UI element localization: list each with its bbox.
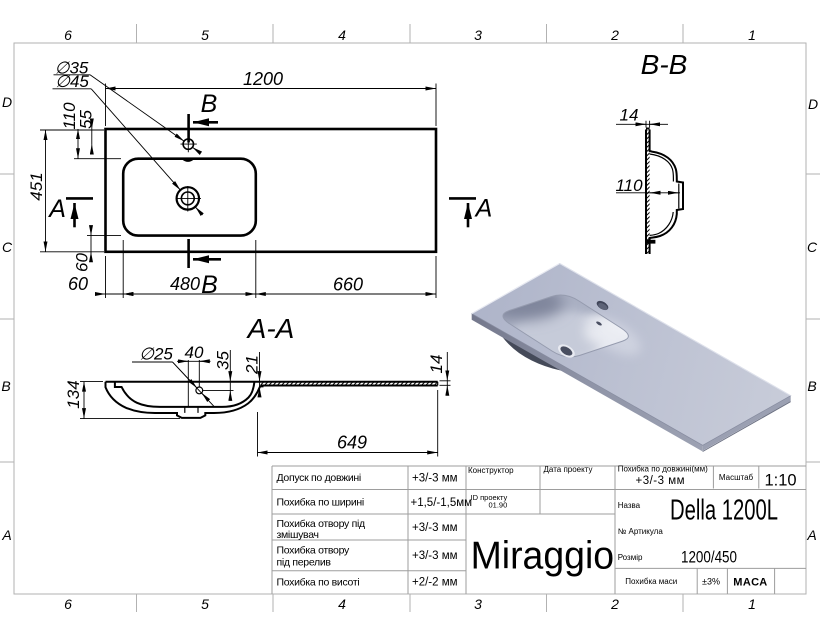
svg-text:під перелив: під перелив — [277, 557, 332, 569]
svg-text:C: C — [2, 239, 13, 255]
svg-text:3: 3 — [474, 596, 482, 612]
svg-text:Допуск по довжині: Допуск по довжині — [277, 472, 361, 484]
svg-text:60: 60 — [68, 274, 88, 294]
svg-text:A: A — [474, 195, 493, 223]
svg-text:Похибка по висоті: Похибка по висоті — [277, 577, 360, 589]
svg-text:55: 55 — [77, 110, 96, 129]
svg-text:±3%: ±3% — [702, 577, 720, 587]
svg-text:Дата проекту: Дата проекту — [544, 465, 593, 474]
svg-text:A: A — [1, 527, 11, 543]
svg-text:2: 2 — [610, 27, 619, 43]
svg-text:40: 40 — [185, 343, 204, 362]
svg-text:Масштаб: Масштаб — [719, 473, 754, 482]
svg-text:1200: 1200 — [243, 69, 283, 89]
svg-text:6: 6 — [64, 27, 72, 43]
svg-text:Похибка маси: Похибка маси — [625, 577, 677, 586]
svg-text:+2/-2 мм: +2/-2 мм — [412, 577, 458, 589]
svg-text:6: 6 — [64, 596, 72, 612]
svg-text:C: C — [807, 239, 818, 255]
svg-text:змішувач: змішувач — [277, 529, 319, 541]
svg-text:110: 110 — [615, 176, 643, 195]
svg-text:1:10: 1:10 — [764, 472, 796, 490]
svg-text:21: 21 — [243, 355, 262, 375]
svg-text:∅45: ∅45 — [55, 72, 89, 91]
svg-text:+3/-3 мм: +3/-3 мм — [412, 550, 458, 562]
svg-text:Похибка отвору: Похибка отвору — [277, 545, 351, 557]
svg-text:134: 134 — [64, 380, 83, 408]
svg-text:Конструктор: Конструктор — [468, 466, 514, 475]
svg-text:01.90: 01.90 — [489, 501, 508, 510]
svg-text:4: 4 — [338, 596, 346, 612]
svg-text:B: B — [201, 90, 218, 118]
svg-text:A-A: A-A — [246, 313, 295, 344]
svg-text:A: A — [47, 195, 66, 223]
svg-text:+3/-3 мм: +3/-3 мм — [412, 473, 458, 485]
svg-text:1: 1 — [748, 27, 756, 43]
svg-text:2: 2 — [610, 596, 619, 612]
svg-text:14: 14 — [620, 106, 639, 125]
svg-text:Della 1200L: Della 1200L — [670, 495, 778, 527]
svg-text:3: 3 — [474, 27, 482, 43]
svg-text:+3/-3 мм: +3/-3 мм — [412, 522, 458, 534]
svg-text:B-B: B-B — [641, 49, 688, 80]
svg-text:+1,5/-1,5мм: +1,5/-1,5мм — [411, 497, 473, 509]
svg-text:35: 35 — [214, 351, 233, 370]
svg-text:1200/450: 1200/450 — [681, 549, 737, 567]
svg-text:D: D — [2, 94, 12, 110]
svg-text:660: 660 — [333, 275, 363, 295]
svg-text:+3/-3 мм: +3/-3 мм — [636, 475, 685, 487]
svg-text:5: 5 — [201, 27, 209, 43]
svg-text:60: 60 — [73, 253, 92, 272]
svg-text:B: B — [1, 378, 10, 394]
svg-text:A: A — [806, 527, 816, 543]
svg-text:Похибка по ширині: Похибка по ширині — [277, 497, 364, 509]
svg-text:Похибка по довжині(мм): Похибка по довжині(мм) — [618, 465, 708, 474]
svg-text:649: 649 — [337, 433, 367, 453]
svg-text:B: B — [807, 378, 816, 394]
svg-text:14: 14 — [427, 355, 446, 374]
svg-text:Miraggio: Miraggio — [471, 535, 614, 578]
svg-text:∅25: ∅25 — [139, 345, 173, 364]
svg-text:4: 4 — [338, 27, 346, 43]
svg-text:D: D — [808, 96, 818, 112]
svg-text:451: 451 — [27, 172, 46, 200]
svg-text:Розмір: Розмір — [618, 553, 643, 562]
svg-text:B: B — [201, 271, 218, 299]
svg-text:Назва: Назва — [618, 501, 641, 510]
svg-text:480: 480 — [170, 274, 200, 294]
svg-text:МАСА: МАСА — [733, 577, 767, 589]
svg-text:1: 1 — [748, 596, 756, 612]
svg-text:5: 5 — [201, 596, 209, 612]
svg-text:№ Артикула: № Артикула — [618, 527, 664, 536]
